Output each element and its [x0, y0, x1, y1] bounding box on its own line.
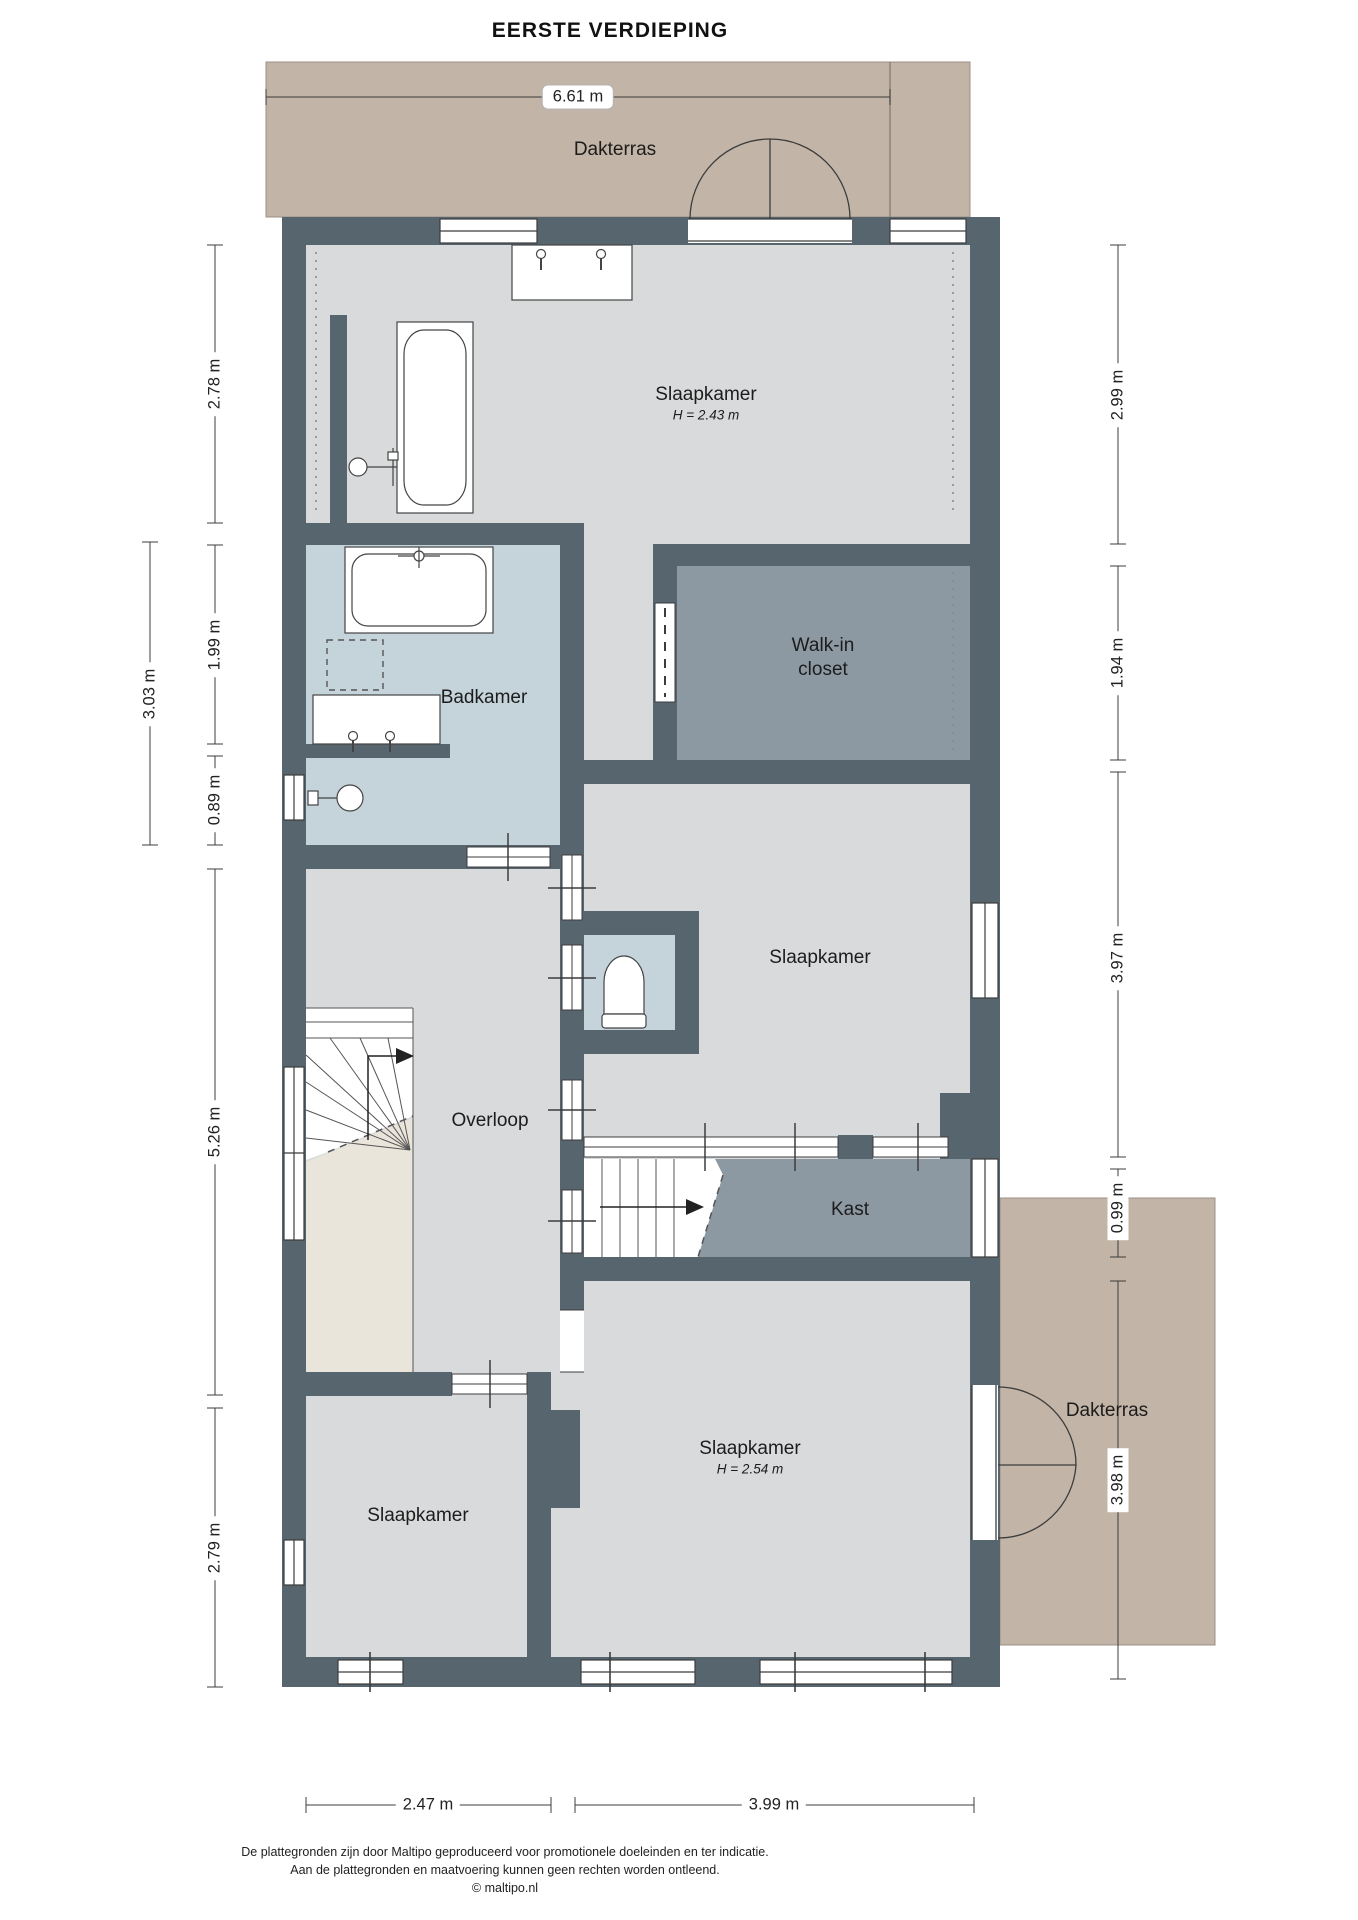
showerhead-icon [349, 458, 367, 476]
dim-top-661: 6.61 m [542, 85, 614, 110]
walkin-line2: closet [792, 658, 855, 682]
room-label-slaapkamer-bl: Slaapkamer [367, 1505, 468, 1527]
dim-right-398: 3.98 m [1108, 1448, 1129, 1512]
toilet [602, 956, 646, 1028]
walkin-line1: Walk-in [792, 634, 855, 658]
vanity-bathroom [313, 695, 440, 752]
dim-left-526: 5.26 m [205, 1100, 226, 1164]
floorplan-page: EERSTE VERDIEPING Dakterras Slaapkamer H… [0, 0, 1358, 1920]
room-label-overloop: Overloop [451, 1110, 528, 1132]
tap-icon [386, 732, 395, 741]
room-label-dakterras-right: Dakterras [1066, 1400, 1148, 1422]
dim-left-279: 2.79 m [205, 1516, 226, 1580]
tap-icon [349, 732, 358, 741]
void-under-stairs [306, 1118, 413, 1372]
page-title: EERSTE VERDIEPING [492, 19, 728, 43]
sliding-door [655, 603, 675, 702]
room-label-slaapkamer-top: Slaapkamer [655, 384, 756, 406]
floorplan-drawing [0, 0, 1358, 1920]
room-label-slaapkamer-mid: Slaapkamer [769, 947, 870, 969]
room-label-walkin-closet: Walk-in closet [792, 634, 855, 682]
room-label-slaapkamer-br: Slaapkamer [699, 1438, 800, 1460]
footer-line1: De plattegronden zijn door Maltipo gepro… [241, 1845, 768, 1859]
room-height-slaapkamer-br: H = 2.54 m [717, 1462, 783, 1477]
footer-line2: Aan de plattegronden en maatvoering kunn… [290, 1863, 720, 1877]
room-height-slaapkamer-top: H = 2.43 m [673, 408, 739, 423]
dim-left-199: 1.99 m [205, 613, 226, 677]
tap-icon [597, 250, 606, 259]
doorway-bottom-right-bedroom [560, 1310, 584, 1372]
room-label-dakterras-top: Dakterras [574, 139, 656, 161]
dim-right-194: 1.94 m [1108, 631, 1129, 695]
dim-bottom-247: 2.47 m [396, 1795, 460, 1816]
bathtub-bathroom [345, 547, 493, 633]
tap-icon [537, 250, 546, 259]
dim-left-278: 2.78 m [205, 352, 226, 416]
dresser-bedroom [512, 245, 632, 300]
dim-left-303: 3.03 m [140, 662, 161, 726]
room-label-kast: Kast [831, 1199, 869, 1221]
footer-line3: © maltipo.nl [472, 1881, 538, 1895]
dim-bottom-399: 3.99 m [742, 1795, 806, 1816]
dim-right-397: 3.97 m [1108, 926, 1129, 990]
room-label-badkamer: Badkamer [441, 687, 528, 709]
dim-left-089: 0.89 m [205, 768, 226, 832]
dim-right-099: 0.99 m [1108, 1176, 1129, 1240]
dim-right-299: 2.99 m [1108, 363, 1129, 427]
